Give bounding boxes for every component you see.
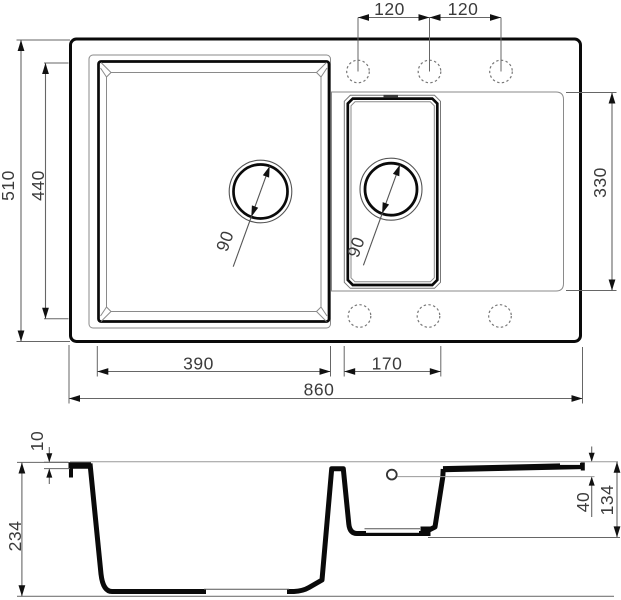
svg-text:390: 390 (183, 354, 214, 374)
svg-text:440: 440 (28, 170, 48, 201)
svg-text:170: 170 (372, 354, 403, 374)
svg-text:40: 40 (573, 492, 593, 512)
svg-text:134: 134 (597, 485, 617, 516)
svg-text:10: 10 (27, 431, 47, 451)
svg-text:120: 120 (448, 0, 479, 19)
svg-text:860: 860 (304, 380, 335, 400)
svg-text:330: 330 (590, 167, 610, 198)
svg-text:510: 510 (0, 170, 18, 201)
svg-text:120: 120 (374, 0, 405, 19)
svg-text:234: 234 (5, 521, 25, 552)
